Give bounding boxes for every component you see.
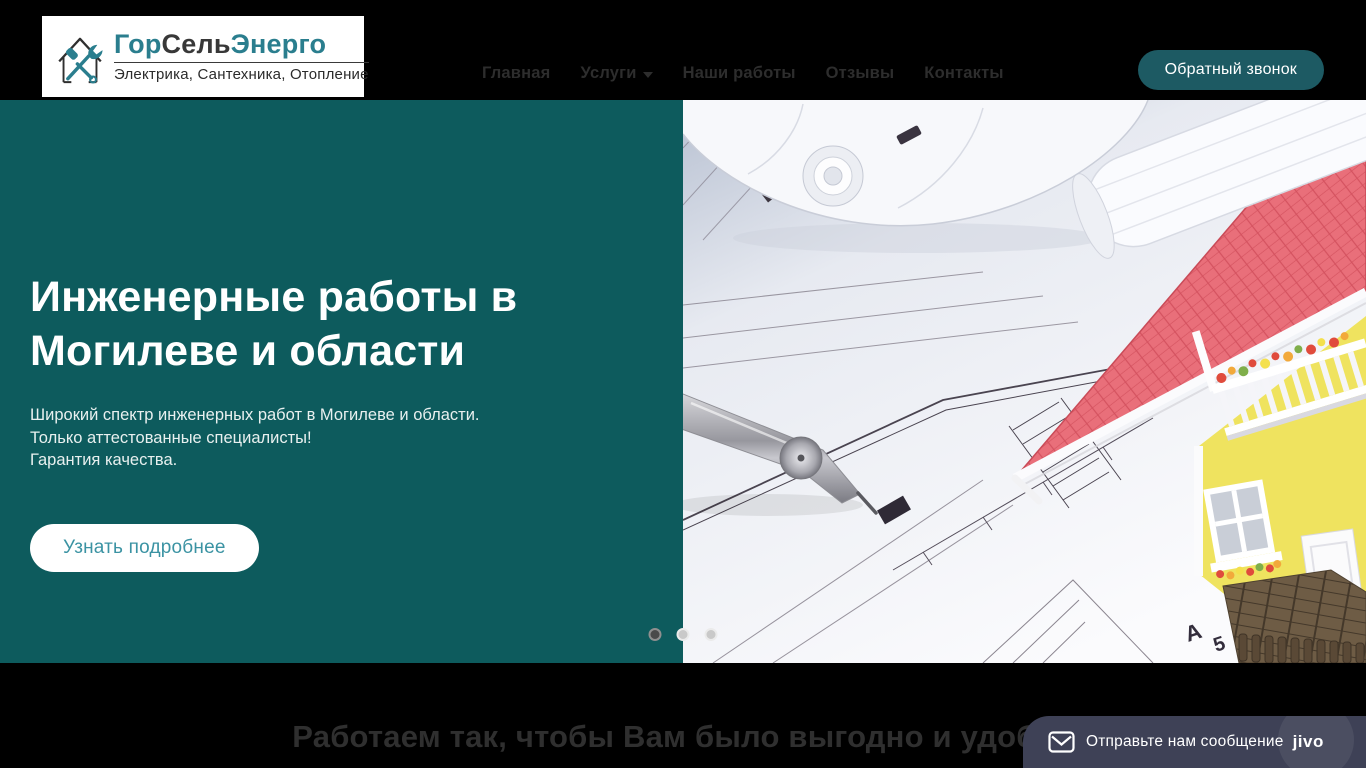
nav-item-contacts[interactable]: Контакты: [924, 64, 1003, 83]
hero-slider: Инженерные работы в Могилеве и области Ш…: [0, 100, 1366, 663]
logo-text: ГорСельЭнерго Электрика, Сантехника, Ото…: [114, 31, 369, 83]
hero-description-line2: Только аттестованные специалисты!: [30, 427, 643, 450]
chevron-down-icon: [643, 72, 653, 78]
main-nav: Главная Услуги Наши работы Отзывы Контак…: [482, 64, 1004, 83]
logo-tagline: Электрика, Сантехника, Отопление: [114, 66, 369, 83]
carousel-dot-3[interactable]: [705, 628, 718, 641]
logo-title-part1: Гор: [114, 29, 162, 59]
hero-description-line3: Гарантия качества.: [30, 449, 643, 472]
nav-item-services-label: Услуги: [581, 64, 637, 83]
chat-message: Отправьте нам сообщение: [1086, 733, 1284, 751]
jivo-logo: jivo: [1293, 732, 1324, 752]
nav-item-home[interactable]: Главная: [482, 64, 551, 83]
page: ГорСельЭнерго Электрика, Сантехника, Ото…: [0, 0, 1366, 768]
hero-content: Инженерные работы в Могилеве и области Ш…: [0, 100, 683, 663]
nav-item-reviews-label: Отзывы: [826, 64, 895, 83]
hero-description: Широкий спектр инженерных работ в Могиле…: [30, 404, 643, 472]
blueprint-house-illustration: A 5: [683, 100, 1366, 663]
logo-divider: [114, 62, 369, 63]
carousel-dot-2[interactable]: [677, 628, 690, 641]
hero-title: Инженерные работы в Могилеве и области: [30, 270, 605, 378]
hero-image: A 5: [683, 100, 1366, 663]
logo-title-part3: Энерго: [231, 29, 327, 59]
carousel-dot-1[interactable]: [649, 628, 662, 641]
house-tools-icon: [54, 27, 106, 87]
site-header: ГорСельЭнерго Электрика, Сантехника, Ото…: [0, 0, 1366, 100]
logo[interactable]: ГорСельЭнерго Электрика, Сантехника, Ото…: [42, 16, 364, 97]
nav-item-contacts-label: Контакты: [924, 64, 1003, 83]
callback-button[interactable]: Обратный звонок: [1138, 50, 1324, 90]
nav-item-works-label: Наши работы: [683, 64, 796, 83]
hero-description-line1: Широкий спектр инженерных работ в Могиле…: [30, 404, 643, 427]
nav-item-home-label: Главная: [482, 64, 551, 83]
chat-widget[interactable]: Отправьте нам сообщение jivo: [1023, 716, 1366, 768]
logo-title: ГорСельЭнерго: [114, 31, 369, 58]
nav-item-reviews[interactable]: Отзывы: [826, 64, 895, 83]
learn-more-button[interactable]: Узнать подробнее: [30, 524, 259, 572]
envelope-icon: [1048, 731, 1075, 753]
nav-item-services[interactable]: Услуги: [581, 64, 653, 83]
nav-item-works[interactable]: Наши работы: [683, 64, 796, 83]
benefits-heading: Работаем так, чтобы Вам было выгодно и у…: [292, 719, 1073, 755]
carousel-dots: [649, 628, 718, 641]
logo-title-part2: Сель: [162, 29, 231, 59]
